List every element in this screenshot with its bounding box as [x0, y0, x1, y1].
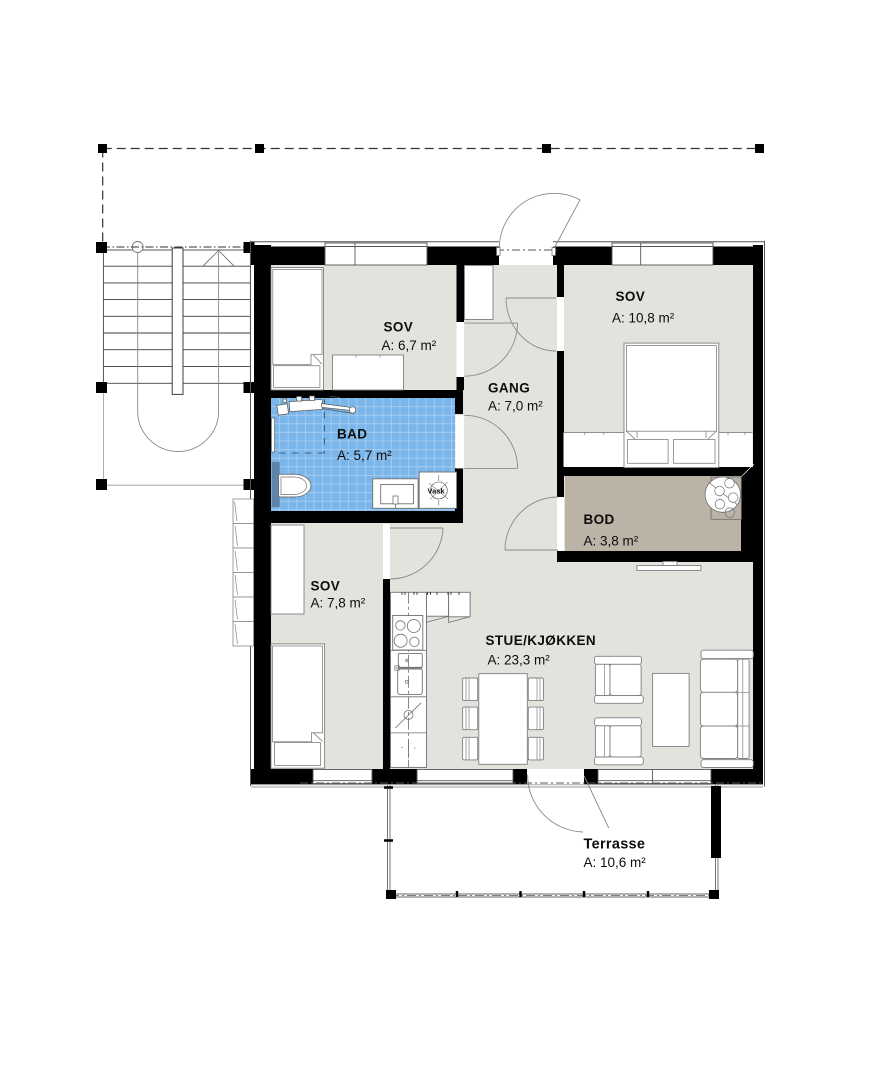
svg-text:Terrasse: Terrasse [584, 837, 646, 853]
svg-text:A: 3,8 m²: A: 3,8 m² [584, 534, 639, 549]
svg-text:SOV: SOV [616, 289, 646, 304]
svg-text:A: 10,8 m²: A: 10,8 m² [612, 311, 675, 326]
svg-text:BAD: BAD [337, 427, 367, 442]
svg-text:A: 7,8 m²: A: 7,8 m² [311, 596, 366, 611]
svg-text:A: 7,0 m²: A: 7,0 m² [488, 399, 543, 414]
svg-text:SOV: SOV [311, 579, 341, 594]
svg-text:A: 5,7 m²: A: 5,7 m² [337, 448, 392, 463]
svg-text:A: 6,7 m²: A: 6,7 m² [382, 338, 437, 353]
svg-text:Vask: Vask [428, 487, 446, 496]
svg-text:BOD: BOD [584, 512, 615, 527]
svg-text:GANG: GANG [488, 381, 530, 396]
svg-text:STUE/KJØKKEN: STUE/KJØKKEN [486, 633, 597, 648]
svg-text:A: 10,6 m²: A: 10,6 m² [584, 855, 647, 870]
svg-text:SOV: SOV [384, 320, 414, 335]
svg-text:A: 23,3 m²: A: 23,3 m² [488, 653, 551, 668]
